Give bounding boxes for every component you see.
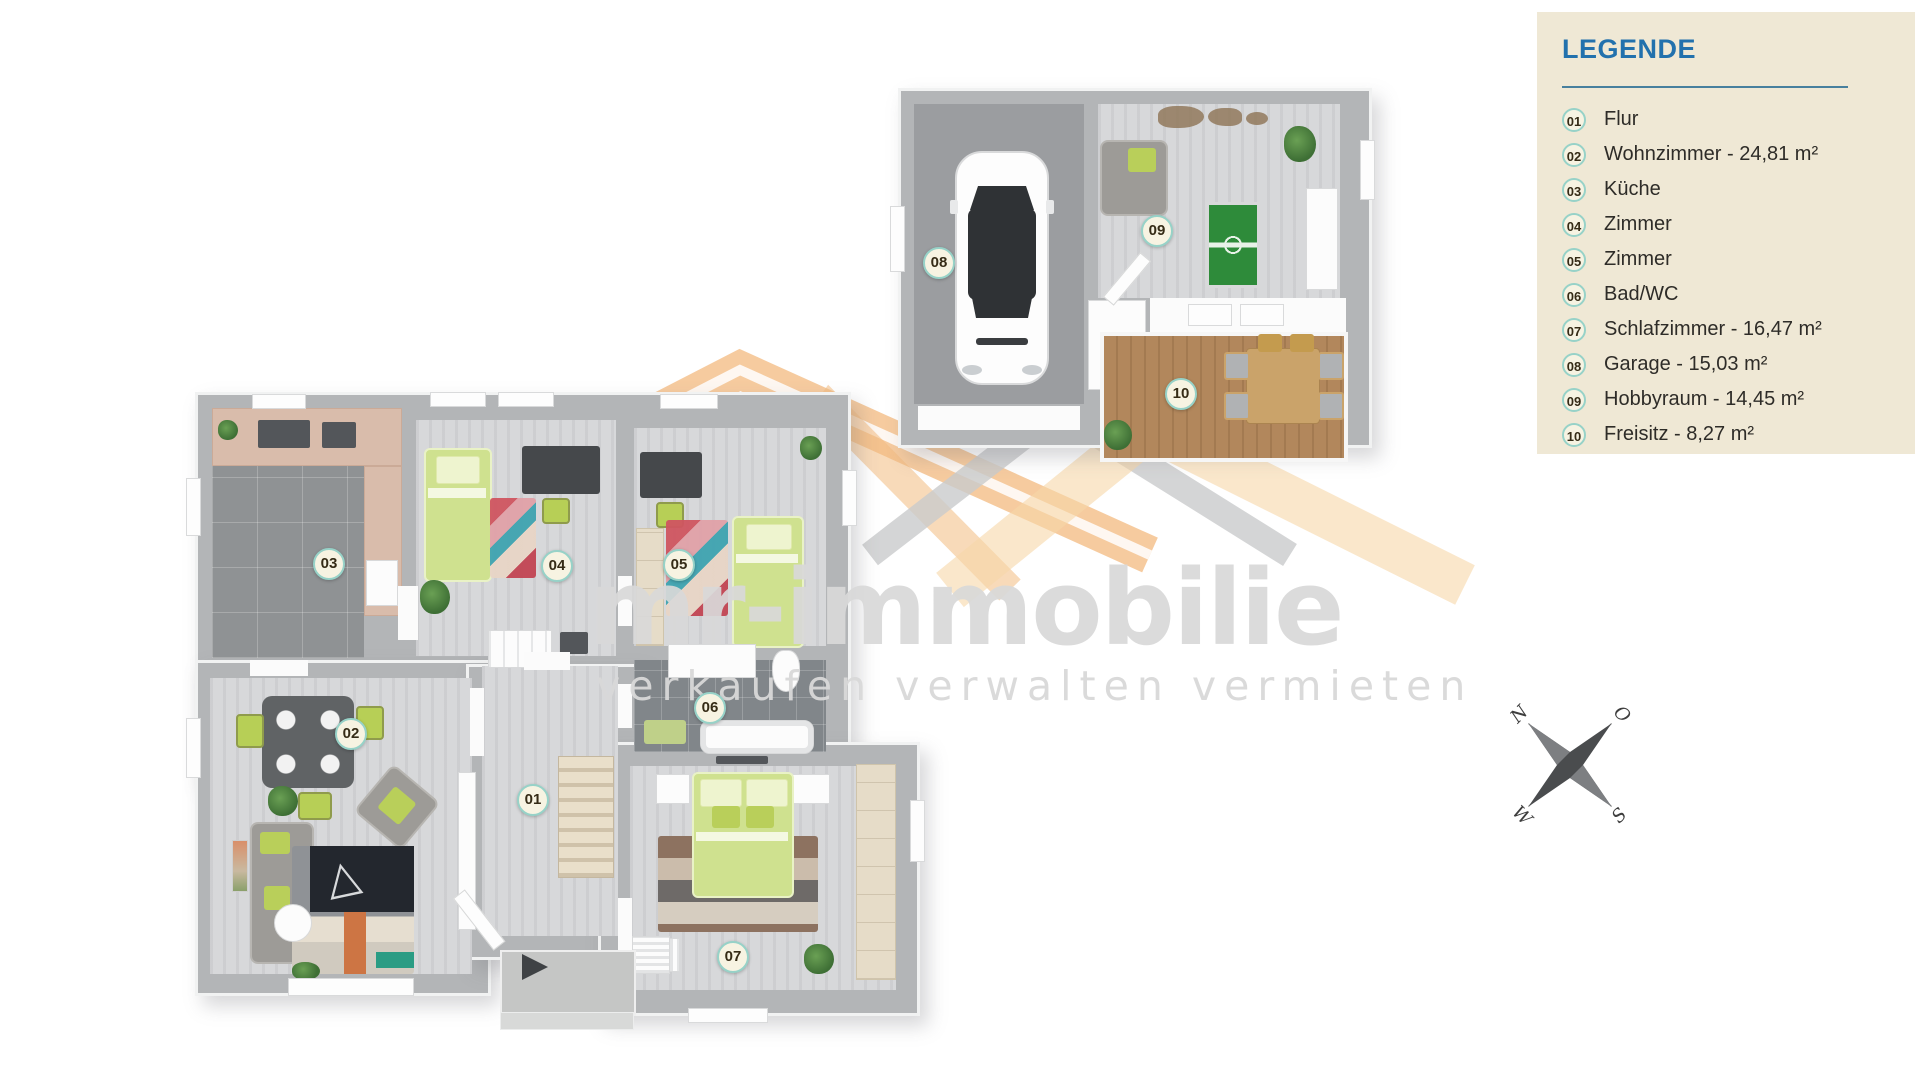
- living-rug-teal-patch: [376, 952, 414, 968]
- legend-label-06: Bad/WC: [1604, 283, 1678, 306]
- door-gap-room04-hall: [524, 652, 570, 670]
- legend-badge-02: 02: [1562, 143, 1586, 167]
- room-badge-07: 07: [717, 941, 749, 973]
- window-room05-right: [842, 470, 857, 526]
- living-area-rug: △: [292, 846, 414, 974]
- room-badge-01: 01: [517, 784, 549, 816]
- window-room04-top-2: [498, 392, 554, 407]
- deck-chair-3: [1318, 352, 1344, 380]
- legend-row-07: 07 Schlafzimmer - 16,47 m²: [1562, 312, 1902, 347]
- legend-label-02: Wohnzimmer - 24,81 m²: [1604, 143, 1818, 166]
- floor-plan-page: { "theme": { "page_bg": "#ffffff", "lege…: [0, 0, 1920, 1080]
- car: [950, 148, 1054, 388]
- door-gap-living-hall: [470, 688, 484, 756]
- hall-bench: [560, 632, 588, 654]
- deck-chair-1: [1224, 352, 1250, 380]
- room-badge-10: 10: [1165, 378, 1197, 410]
- room-badge-08: 08: [923, 247, 955, 279]
- kitchen-stove: [322, 422, 356, 448]
- legend-badge-06: 06: [1562, 283, 1586, 307]
- deck-chair-6: [1290, 334, 1314, 352]
- hobbyroom-plant: [1284, 126, 1316, 162]
- bath-mat: [644, 720, 686, 744]
- bedroom07-nightstand-left: [656, 774, 690, 804]
- kitchen-sink: [258, 420, 310, 448]
- room04-rug: [490, 498, 536, 578]
- deck-window-2: [1240, 304, 1284, 326]
- legend-label-04: Zimmer: [1604, 213, 1672, 236]
- compass-label-east: O: [1609, 702, 1634, 727]
- room04-plant: [420, 580, 450, 614]
- window-room04-top-1: [430, 392, 486, 407]
- staircase: [558, 756, 614, 878]
- legend-row-09: 09 Hobbyraum - 14,45 m²: [1562, 382, 1902, 417]
- room-badge-02: 02: [335, 718, 367, 750]
- window-bedroom07-bottom: [688, 1008, 768, 1023]
- living-wall-art: [232, 840, 248, 892]
- deck-dining-table: [1246, 348, 1320, 424]
- bedroom07-plant: [804, 944, 834, 974]
- legend-row-02: 02 Wohnzimmer - 24,81 m²: [1562, 137, 1902, 172]
- room-badge-06: 06: [694, 692, 726, 724]
- room05-desk: [640, 452, 702, 498]
- deck-plant: [1104, 420, 1132, 450]
- legend-label-08: Garage - 15,03 m²: [1604, 353, 1767, 376]
- entrance-porch: [500, 950, 636, 1016]
- legend-badge-01: 01: [1562, 108, 1586, 132]
- deck-chair-2: [1224, 392, 1250, 420]
- legend-title: LEGENDE: [1562, 34, 1696, 65]
- bedroom07-tv: [716, 756, 768, 764]
- legend-panel: LEGENDE 01 Flur 02 Wohnzimmer - 24,81 m²…: [1537, 12, 1915, 454]
- window-hobby-right: [1360, 140, 1375, 200]
- world-map-decal-2: [1208, 108, 1242, 126]
- room-badge-04: 04: [541, 550, 573, 582]
- door-gap-bedroom07: [618, 898, 632, 950]
- living-rug-orange-stripe: [344, 912, 366, 974]
- legend-row-10: 10 Freisitz - 8,27 m²: [1562, 417, 1902, 452]
- entrance-porch-step: [500, 1012, 634, 1030]
- legend-row-03: 03 Küche: [1562, 172, 1902, 207]
- kitchen-plant: [218, 420, 238, 440]
- legend-label-07: Schlafzimmer - 16,47 m²: [1604, 318, 1822, 341]
- bath-tub: [700, 720, 814, 754]
- legend-divider: [1562, 86, 1848, 88]
- living-chair-left: [236, 714, 264, 748]
- compass-label-south: S: [1608, 804, 1632, 828]
- legend-label-10: Freisitz - 8,27 m²: [1604, 423, 1754, 446]
- room-badge-03: 03: [313, 548, 345, 580]
- living-coffee-table: [274, 904, 312, 942]
- legend-badge-08: 08: [1562, 353, 1586, 377]
- window-kitchen-top: [252, 394, 306, 409]
- room04-chair: [542, 498, 570, 524]
- bedroom07-wardrobe: [856, 764, 896, 980]
- legend-row-01: 01 Flur: [1562, 102, 1902, 137]
- legend-badge-09: 09: [1562, 388, 1586, 412]
- hall-shoe-rack: [632, 936, 670, 974]
- room04-desk: [522, 446, 600, 494]
- bedroom07-nightstand-right: [792, 774, 830, 804]
- deck-chair-5: [1258, 334, 1282, 352]
- hobbyroom-armchair: [1100, 140, 1168, 216]
- legend-badge-07: 07: [1562, 318, 1586, 342]
- door-gap-kitchen-living: [250, 660, 308, 676]
- brand-watermark-text: mr-immobilie: [588, 556, 1343, 660]
- living-rug-triangle-art: △: [322, 848, 379, 905]
- window-kitchen-left: [186, 478, 201, 536]
- window-living-bottom: [288, 978, 414, 996]
- legend-label-05: Zimmer: [1604, 248, 1672, 271]
- compass-rose: N O S W: [1505, 700, 1635, 830]
- bedroom07-bed: [692, 772, 794, 898]
- legend-label-09: Hobbyraum - 14,45 m²: [1604, 388, 1804, 411]
- legend-label-03: Küche: [1604, 178, 1661, 201]
- living-plant-stand: [268, 786, 298, 816]
- legend-row-06: 06 Bad/WC: [1562, 277, 1902, 312]
- deck-window-1: [1188, 304, 1232, 326]
- window-room05-top: [660, 394, 718, 409]
- legend-row-08: 08 Garage - 15,03 m²: [1562, 347, 1902, 382]
- legend-badge-03: 03: [1562, 178, 1586, 202]
- room-badge-09: 09: [1141, 215, 1173, 247]
- legend-row-05: 05 Zimmer: [1562, 242, 1902, 277]
- garage-door-strip: [918, 406, 1080, 430]
- window-bedroom07-right: [910, 800, 925, 862]
- tagline-watermark-text: verkaufen verwalten vermieten: [596, 662, 1473, 710]
- room05-plant: [800, 436, 822, 460]
- room04-bed: [424, 448, 492, 582]
- window-living-left: [186, 718, 201, 778]
- room-badge-05: 05: [663, 549, 695, 581]
- legend-badge-10: 10: [1562, 423, 1586, 447]
- door-gap-kitchen-hall: [398, 586, 418, 640]
- living-chair-bottom: [298, 792, 332, 820]
- window-garage-left: [890, 206, 905, 272]
- legend-items: 01 Flur 02 Wohnzimmer - 24,81 m² 03 Küch…: [1562, 102, 1902, 452]
- deck-chair-4: [1318, 392, 1344, 420]
- legend-badge-05: 05: [1562, 248, 1586, 272]
- hobbyroom-counter: [1306, 188, 1338, 290]
- foosball-table: [1206, 202, 1260, 288]
- legend-row-04: 04 Zimmer: [1562, 207, 1902, 242]
- kitchen-oven-tower: [366, 560, 398, 606]
- world-map-decal-3: [1246, 112, 1268, 125]
- legend-label-01: Flur: [1604, 108, 1638, 131]
- compass-label-west: W: [1508, 802, 1537, 830]
- legend-badge-04: 04: [1562, 213, 1586, 237]
